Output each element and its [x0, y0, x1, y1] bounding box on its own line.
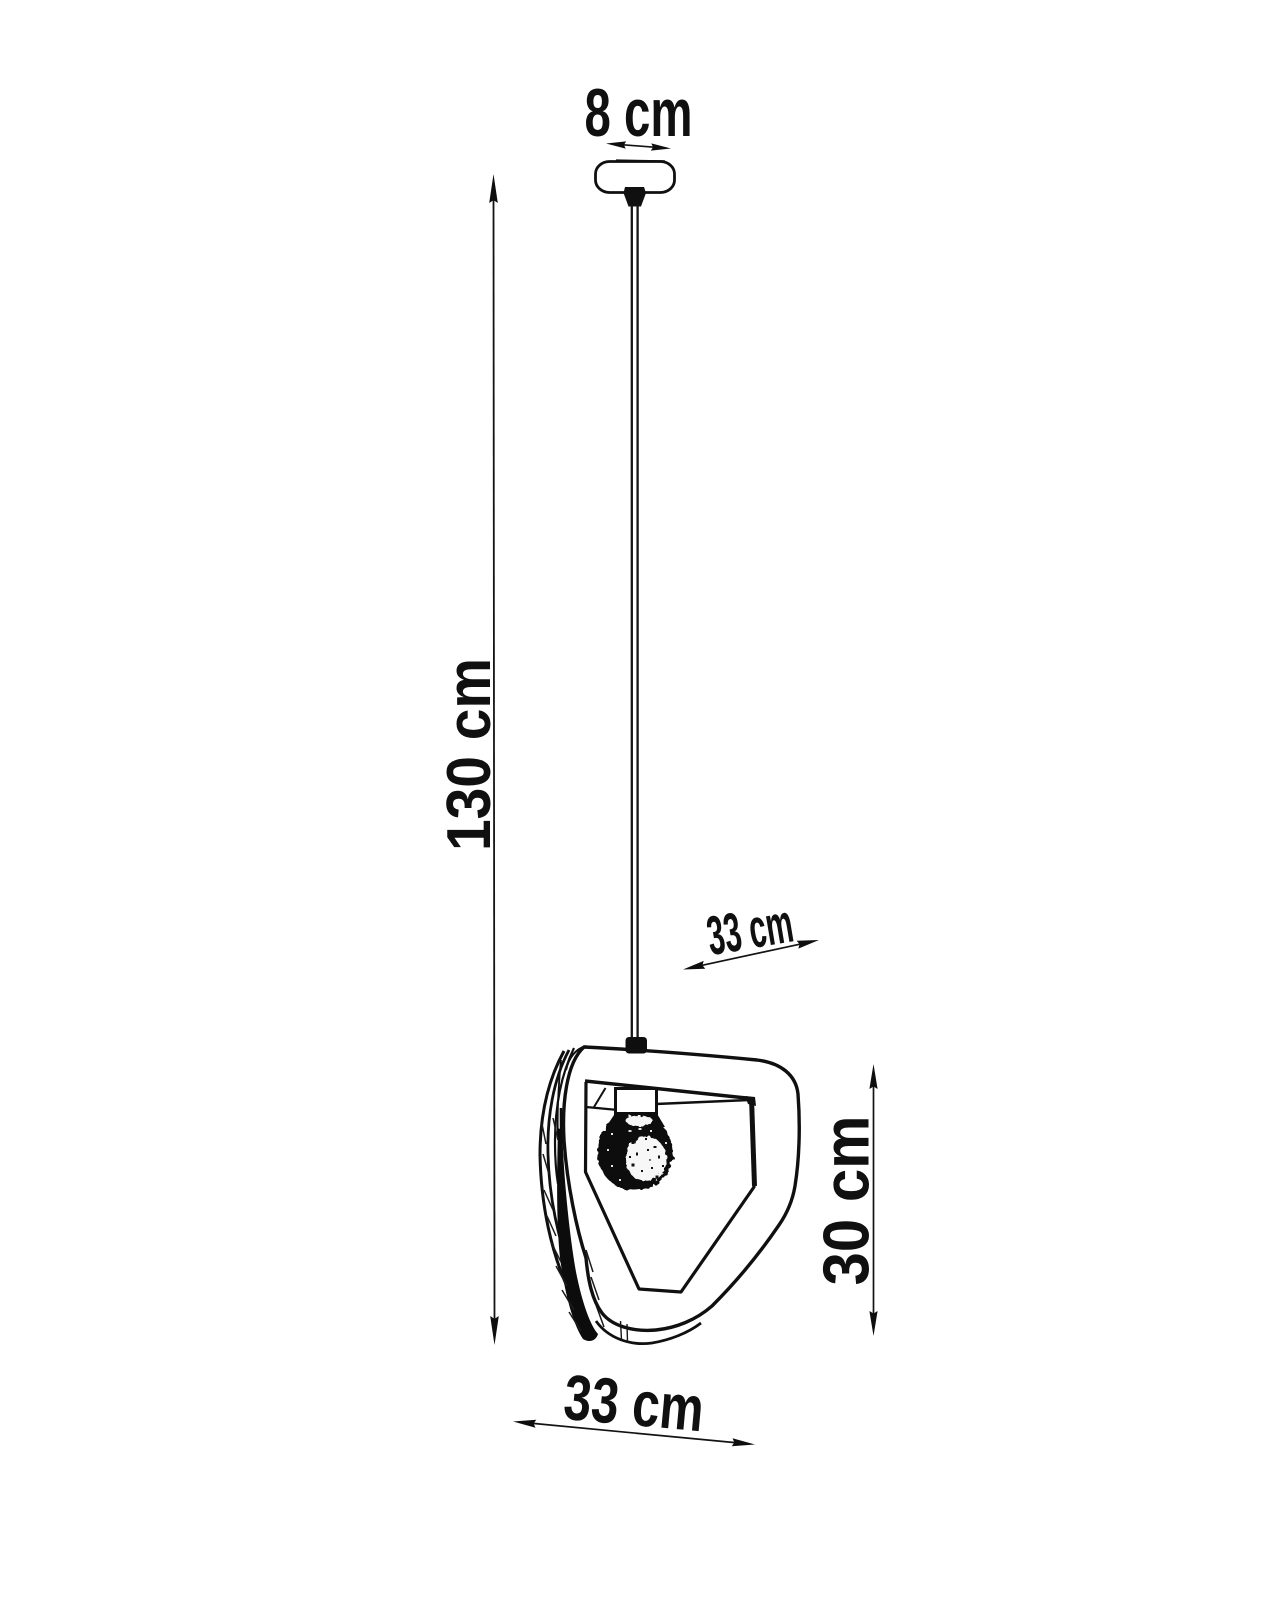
svg-text:8 cm: 8 cm — [585, 75, 693, 151]
svg-text:30 cm: 30 cm — [810, 1116, 883, 1286]
svg-text:130 cm: 130 cm — [435, 658, 504, 851]
